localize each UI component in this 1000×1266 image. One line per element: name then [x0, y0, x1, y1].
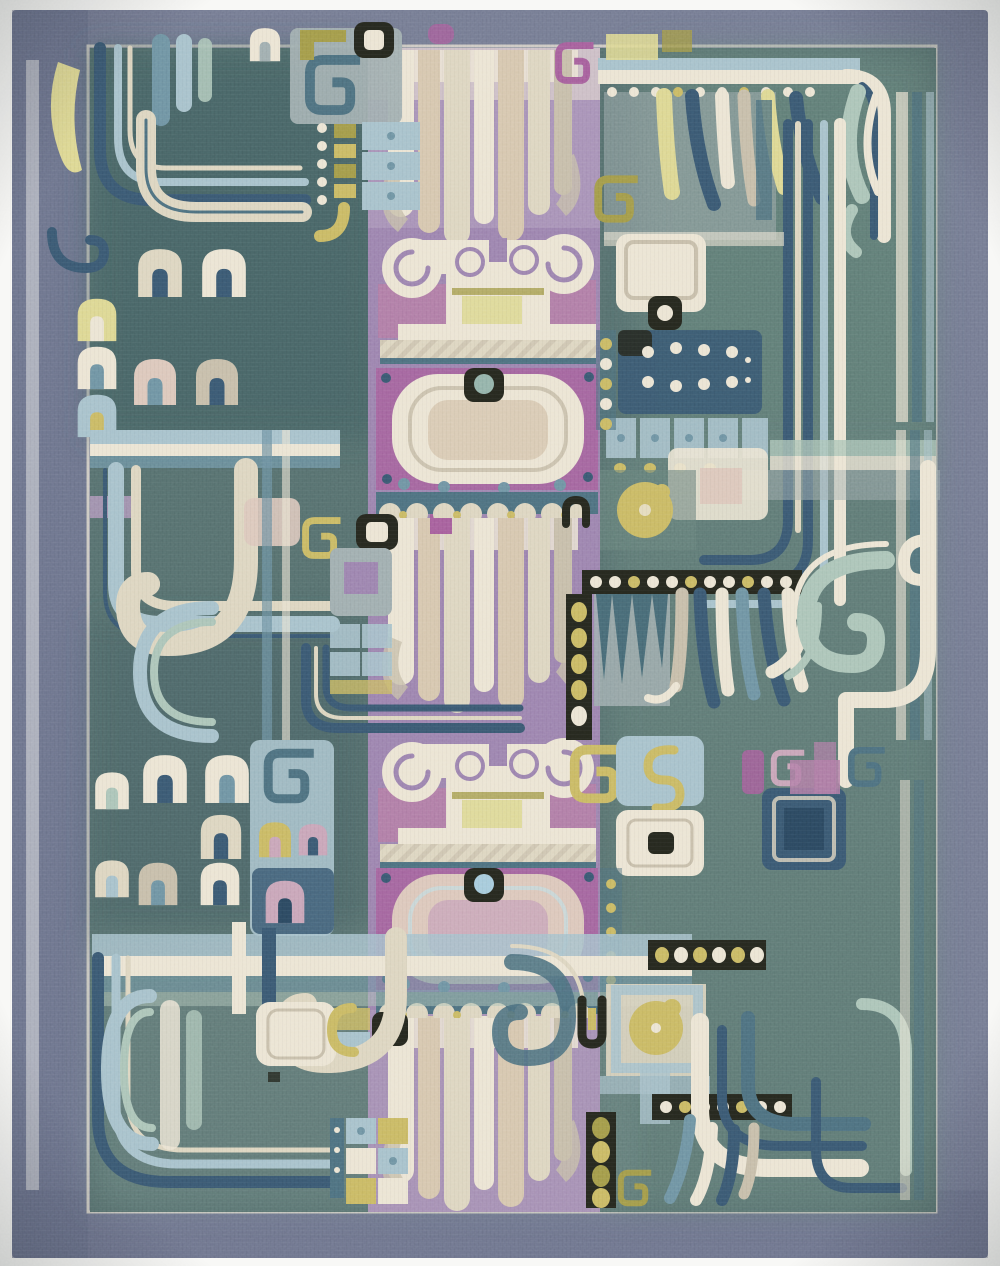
- photo-stage: [0, 0, 1000, 1266]
- photo-texture: [0, 0, 1000, 1266]
- rug-photo: [0, 0, 1000, 1266]
